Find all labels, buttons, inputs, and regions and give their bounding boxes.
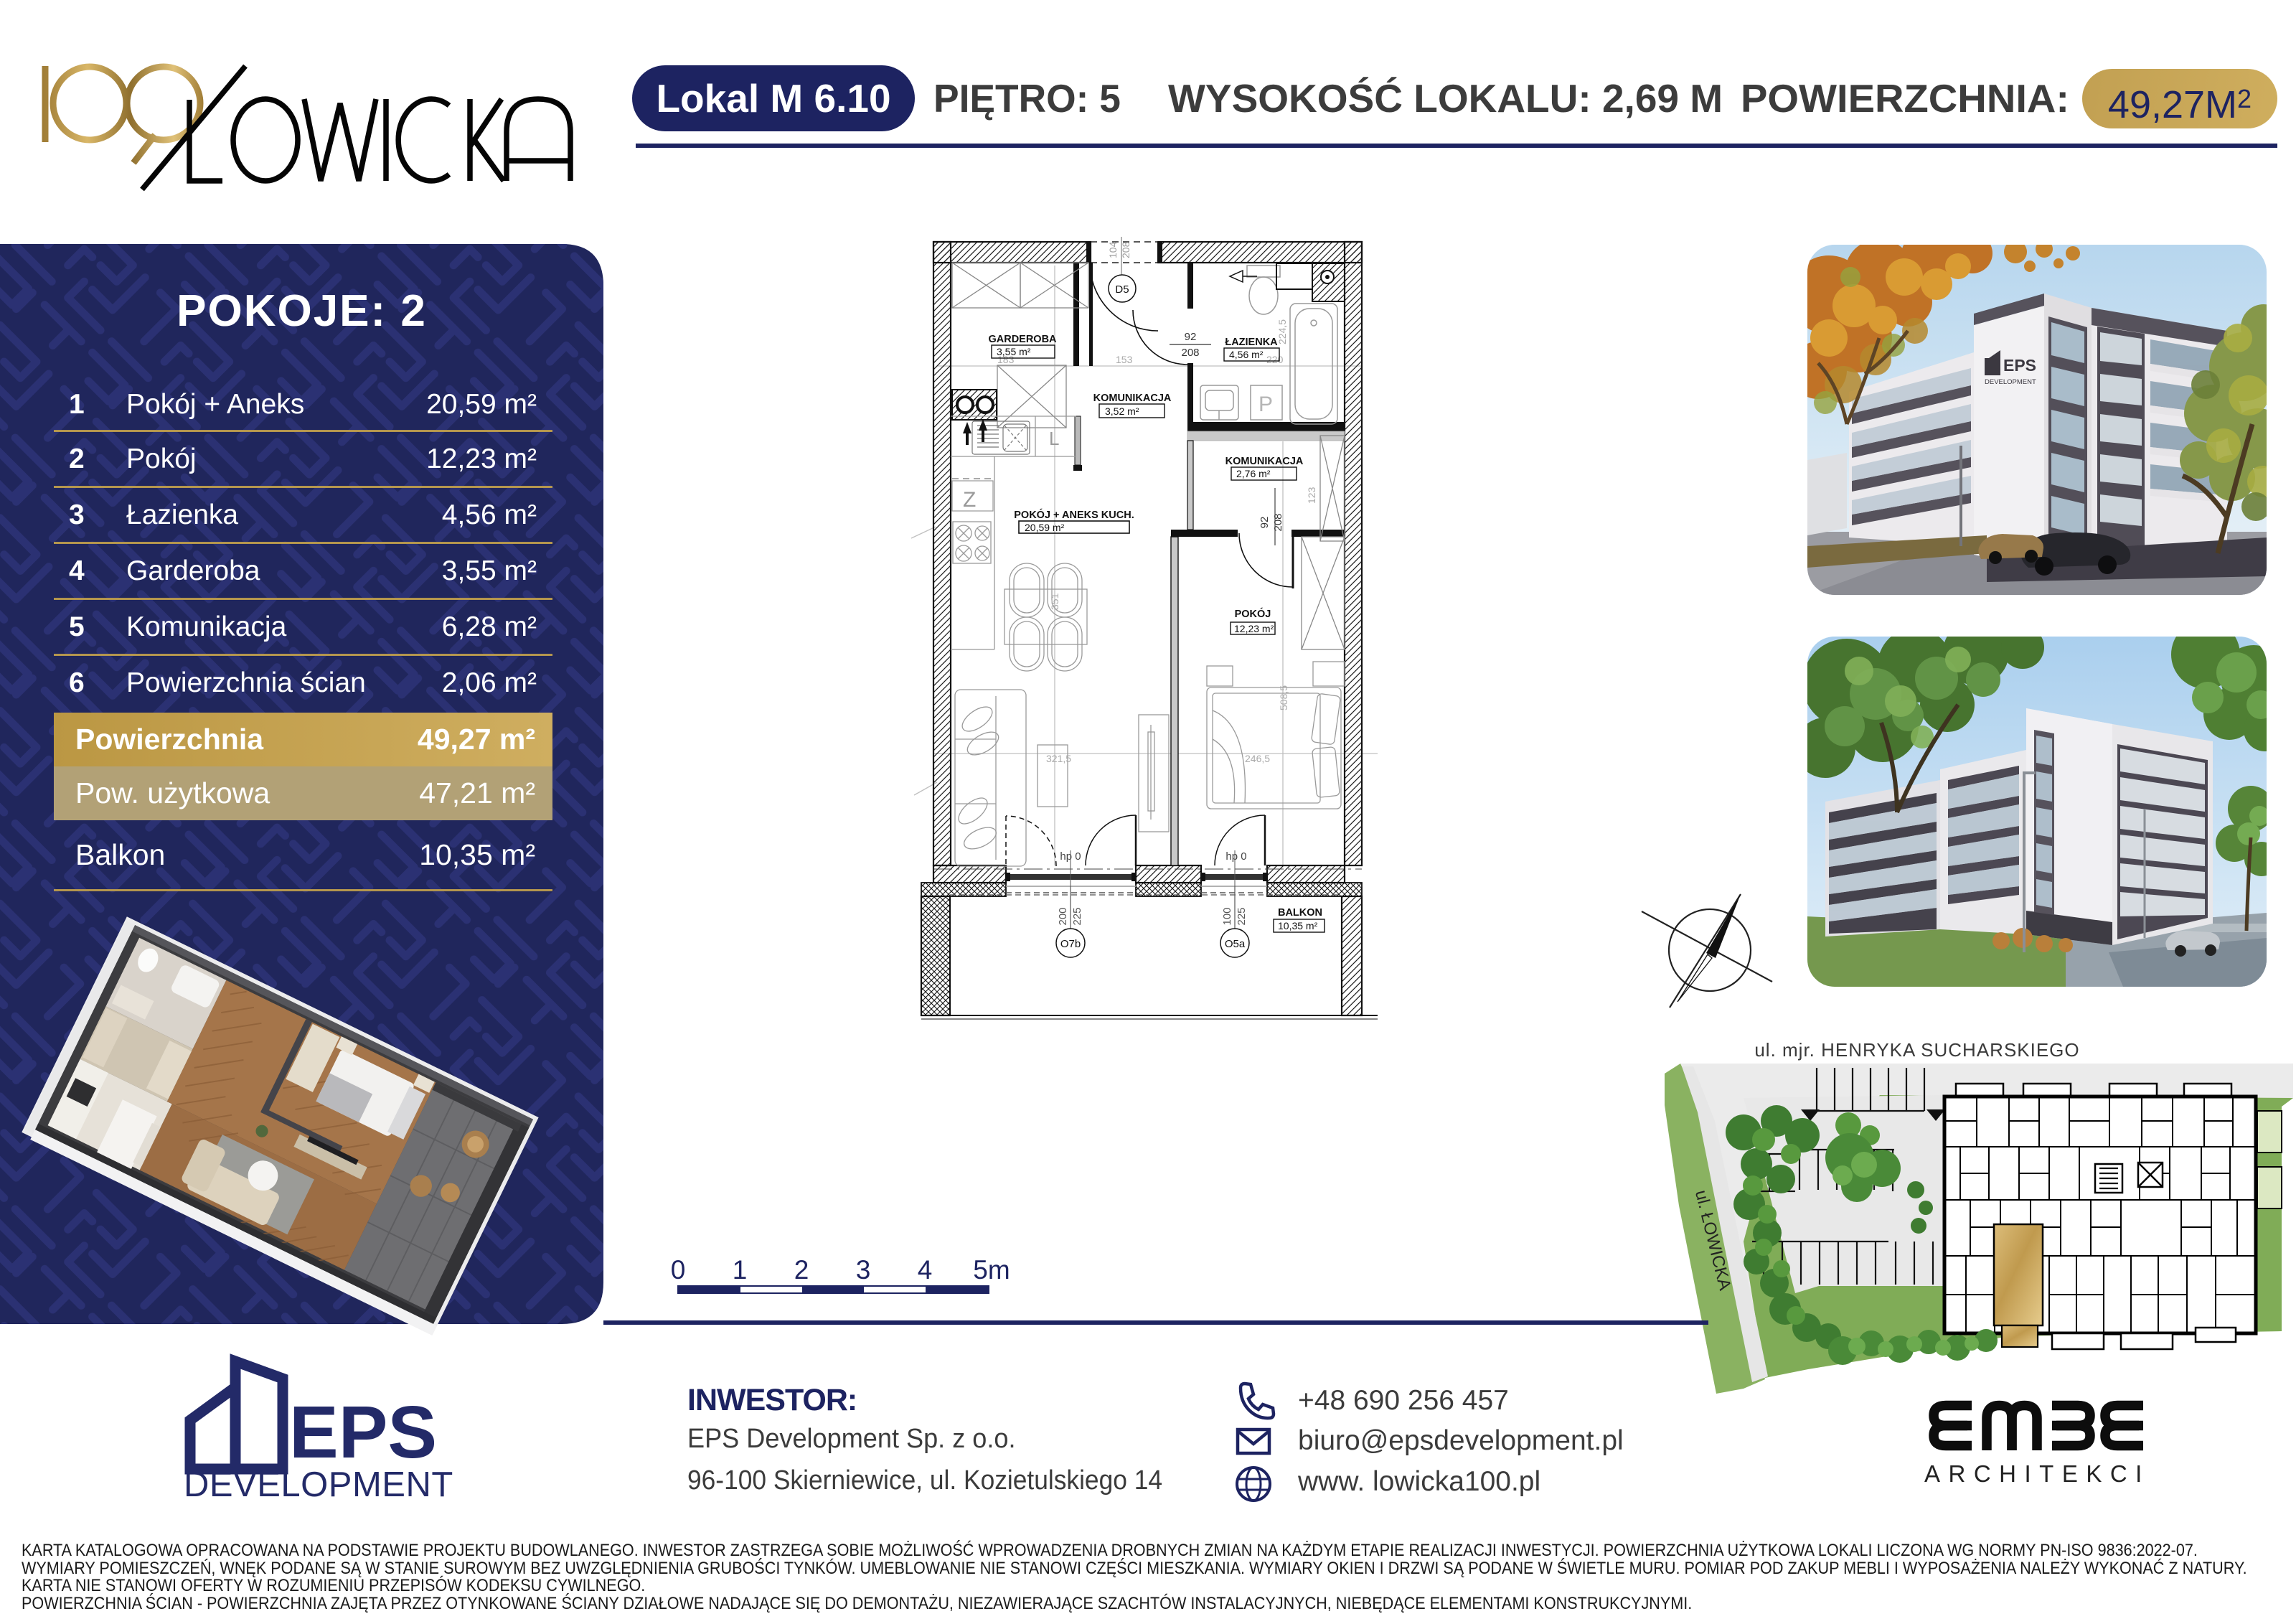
svg-text:KOMUNIKACJA: KOMUNIKACJA <box>1093 393 1172 404</box>
svg-text:92: 92 <box>1258 517 1271 529</box>
svg-text:2: 2 <box>794 1257 809 1285</box>
svg-text:ul. mjr. HENRYKA SUCHARSKIEGO: ul. mjr. HENRYKA SUCHARSKIEGO <box>1754 1039 2079 1061</box>
svg-text:100: 100 <box>1221 907 1233 925</box>
svg-text:EPS: EPS <box>2003 356 2036 375</box>
svg-text:12,23 m²: 12,23 m² <box>1234 623 1274 634</box>
svg-text:P: P <box>1258 393 1273 416</box>
svg-text:DEVELOPMENT: DEVELOPMENT <box>184 1465 453 1504</box>
svg-text:104: 104 <box>1107 241 1119 258</box>
svg-text:208: 208 <box>1272 513 1284 531</box>
svg-text:O5a: O5a <box>1225 938 1246 950</box>
svg-text:220: 220 <box>1266 354 1284 365</box>
svg-text:hp 0: hp 0 <box>1225 850 1246 863</box>
svg-text:ARCHITEKCI: ARCHITEKCI <box>1924 1460 2150 1487</box>
svg-text:508,5: 508,5 <box>1278 685 1289 710</box>
svg-text:3,55 m²: 3,55 m² <box>997 346 1031 357</box>
svg-text:4: 4 <box>918 1257 933 1285</box>
svg-text:POKÓJ + ANEKS KUCH.: POKÓJ + ANEKS KUCH. <box>1014 508 1134 521</box>
svg-text:O7b: O7b <box>1060 938 1081 950</box>
svg-text:153: 153 <box>1116 354 1133 365</box>
svg-text:5m: 5m <box>973 1257 1010 1285</box>
svg-text:10,35 m²: 10,35 m² <box>1278 920 1318 931</box>
svg-text:KOMUNIKACJA: KOMUNIKACJA <box>1225 456 1304 467</box>
svg-text:POKÓJ: POKÓJ <box>1235 607 1271 620</box>
svg-text:D5: D5 <box>1115 283 1129 296</box>
svg-text:246,5: 246,5 <box>1245 753 1270 764</box>
svg-text:20,59 m²: 20,59 m² <box>1025 522 1065 533</box>
svg-text:EPS: EPS <box>289 1391 437 1473</box>
svg-text:0: 0 <box>671 1257 686 1285</box>
svg-text:224,5: 224,5 <box>1276 319 1288 344</box>
svg-text:208: 208 <box>1181 347 1199 359</box>
svg-text:Z: Z <box>963 488 976 512</box>
svg-text:351: 351 <box>1049 593 1060 610</box>
svg-text:DEVELOPMENT: DEVELOPMENT <box>1985 378 2036 386</box>
svg-text:3: 3 <box>856 1257 871 1285</box>
svg-text:GARDEROBA: GARDEROBA <box>988 334 1057 345</box>
svg-text:1: 1 <box>733 1257 748 1285</box>
svg-text:4,56 m²: 4,56 m² <box>1229 349 1264 360</box>
svg-text:321,5: 321,5 <box>1046 753 1071 764</box>
svg-text:2,76 m²: 2,76 m² <box>1236 468 1271 479</box>
svg-text:225: 225 <box>1071 907 1083 925</box>
svg-text:92: 92 <box>1185 331 1197 343</box>
svg-text:ŁAZIENKA: ŁAZIENKA <box>1225 337 1278 348</box>
svg-text:L: L <box>1049 428 1059 449</box>
svg-text:3,52 m²: 3,52 m² <box>1105 405 1139 417</box>
svg-text:123: 123 <box>1306 487 1317 504</box>
svg-text:225: 225 <box>1236 907 1248 925</box>
svg-text:BALKON: BALKON <box>1278 907 1322 919</box>
svg-text:200: 200 <box>1057 907 1069 925</box>
